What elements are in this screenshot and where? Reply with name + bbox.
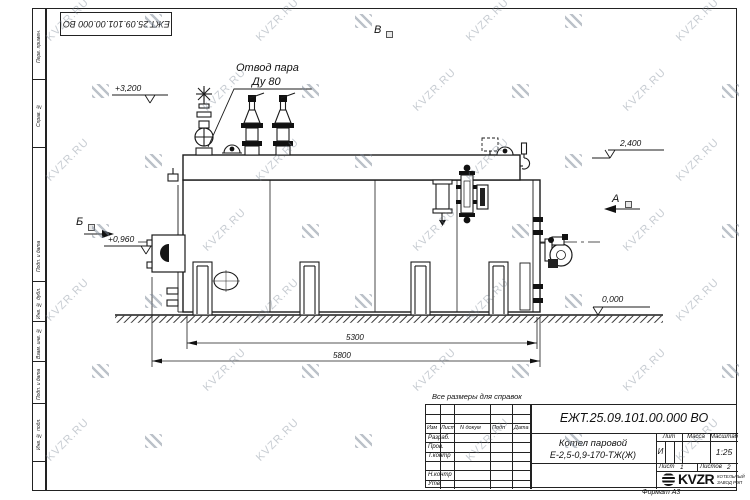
elevation-mid-left: +0,960 [108, 234, 134, 244]
scale-value: 1:25 [710, 447, 738, 457]
row-prov: Пров. [428, 444, 444, 450]
margin-box: Инв. № подл. [33, 403, 45, 462]
corner-stamp-designation: ЕЖТ.25.09.101.00.000 ВО [63, 19, 170, 29]
sheet-ref-marker [625, 201, 632, 208]
margin-label: Инв. № подл. [33, 405, 45, 462]
margin-label: Справ. № [33, 81, 45, 148]
col-ndokum: N докум [460, 425, 481, 431]
margin-box: Взам. инв. № [33, 321, 45, 362]
margin-box: Инв. № дубл. [33, 281, 45, 322]
format-label: Формат А3 [642, 489, 680, 496]
lit-label: Лит [656, 434, 682, 440]
margin-column: Перв. примен. Справ. № Подп. и дата Инв.… [32, 8, 46, 491]
drawing-sheet: Перв. примен. Справ. № Подп. и дата Инв.… [0, 0, 750, 500]
dim-5800: 5800 [333, 351, 351, 360]
elevation-top: +3,200 [115, 83, 141, 93]
lit-value: И [656, 447, 665, 456]
row-razrab: Разраб. [428, 435, 450, 441]
margin-label: Подп. и дата [33, 229, 45, 282]
callout-line1: Отвод пара [236, 62, 299, 74]
col-podp: Подп [492, 425, 505, 431]
sheet-ref-marker [88, 224, 95, 231]
col-data: Дата [514, 425, 529, 431]
row-nkontr: Н.контр [428, 472, 452, 478]
margin-box: Справ. № [33, 79, 45, 148]
row-tkontr: Т.контр [428, 453, 451, 459]
elevation-right: 2,400 [620, 138, 641, 148]
company-logo-text: KVZR [678, 471, 714, 487]
col-list: Лист [441, 425, 455, 431]
sheet-label: Лист [659, 464, 674, 470]
sheets-label: Листов [700, 464, 722, 470]
product-name-1: Котел паровой [530, 438, 656, 449]
margin-label: Перв. примен. [33, 11, 45, 80]
row-utv: Утв. [428, 481, 442, 487]
col-izm: Изм [427, 425, 437, 431]
margin-label: Взам. инв. № [33, 323, 45, 362]
elevation-ground: 0,000 [602, 294, 623, 304]
view-label-b: Б [76, 216, 83, 228]
callout-line2: Ду 80 [252, 76, 281, 88]
margin-box: Подп. и дата [33, 227, 45, 282]
corner-stamp: ЕЖТ.25.09.101.00.000 ВО [60, 12, 172, 36]
company-sub-2: ЗАВОД РЭП [717, 480, 742, 485]
mass-label: Масса [682, 434, 710, 440]
doc-designation: ЕЖТ.25.09.101.00.000 ВО [530, 411, 738, 425]
kvzr-logo-icon [662, 473, 675, 486]
sheets-value: 2 [727, 464, 731, 471]
sheet-ref-marker [386, 31, 393, 38]
reference-note: Все размеры для справок [432, 392, 522, 401]
margin-label: Инв. № дубл. [33, 283, 45, 322]
title-block: Изм Лист N докум Подп Дата Разраб. Пров.… [425, 404, 737, 488]
product-name-2: Е-2,5-0,9-170-ТЖ(Ж) [530, 450, 656, 460]
view-label-a: А [612, 193, 619, 205]
scale-label: Масштаб [710, 434, 738, 440]
view-label-v: В [374, 24, 381, 36]
sheet-value: 1 [680, 464, 684, 471]
company-sub-1: КОТЕЛЬНЫЙ [717, 474, 745, 479]
margin-box: Подп. и дата [33, 361, 45, 404]
dim-5300: 5300 [346, 333, 364, 342]
margin-label: Подп. и дата [33, 363, 45, 404]
margin-box: Перв. примен. [33, 9, 45, 80]
